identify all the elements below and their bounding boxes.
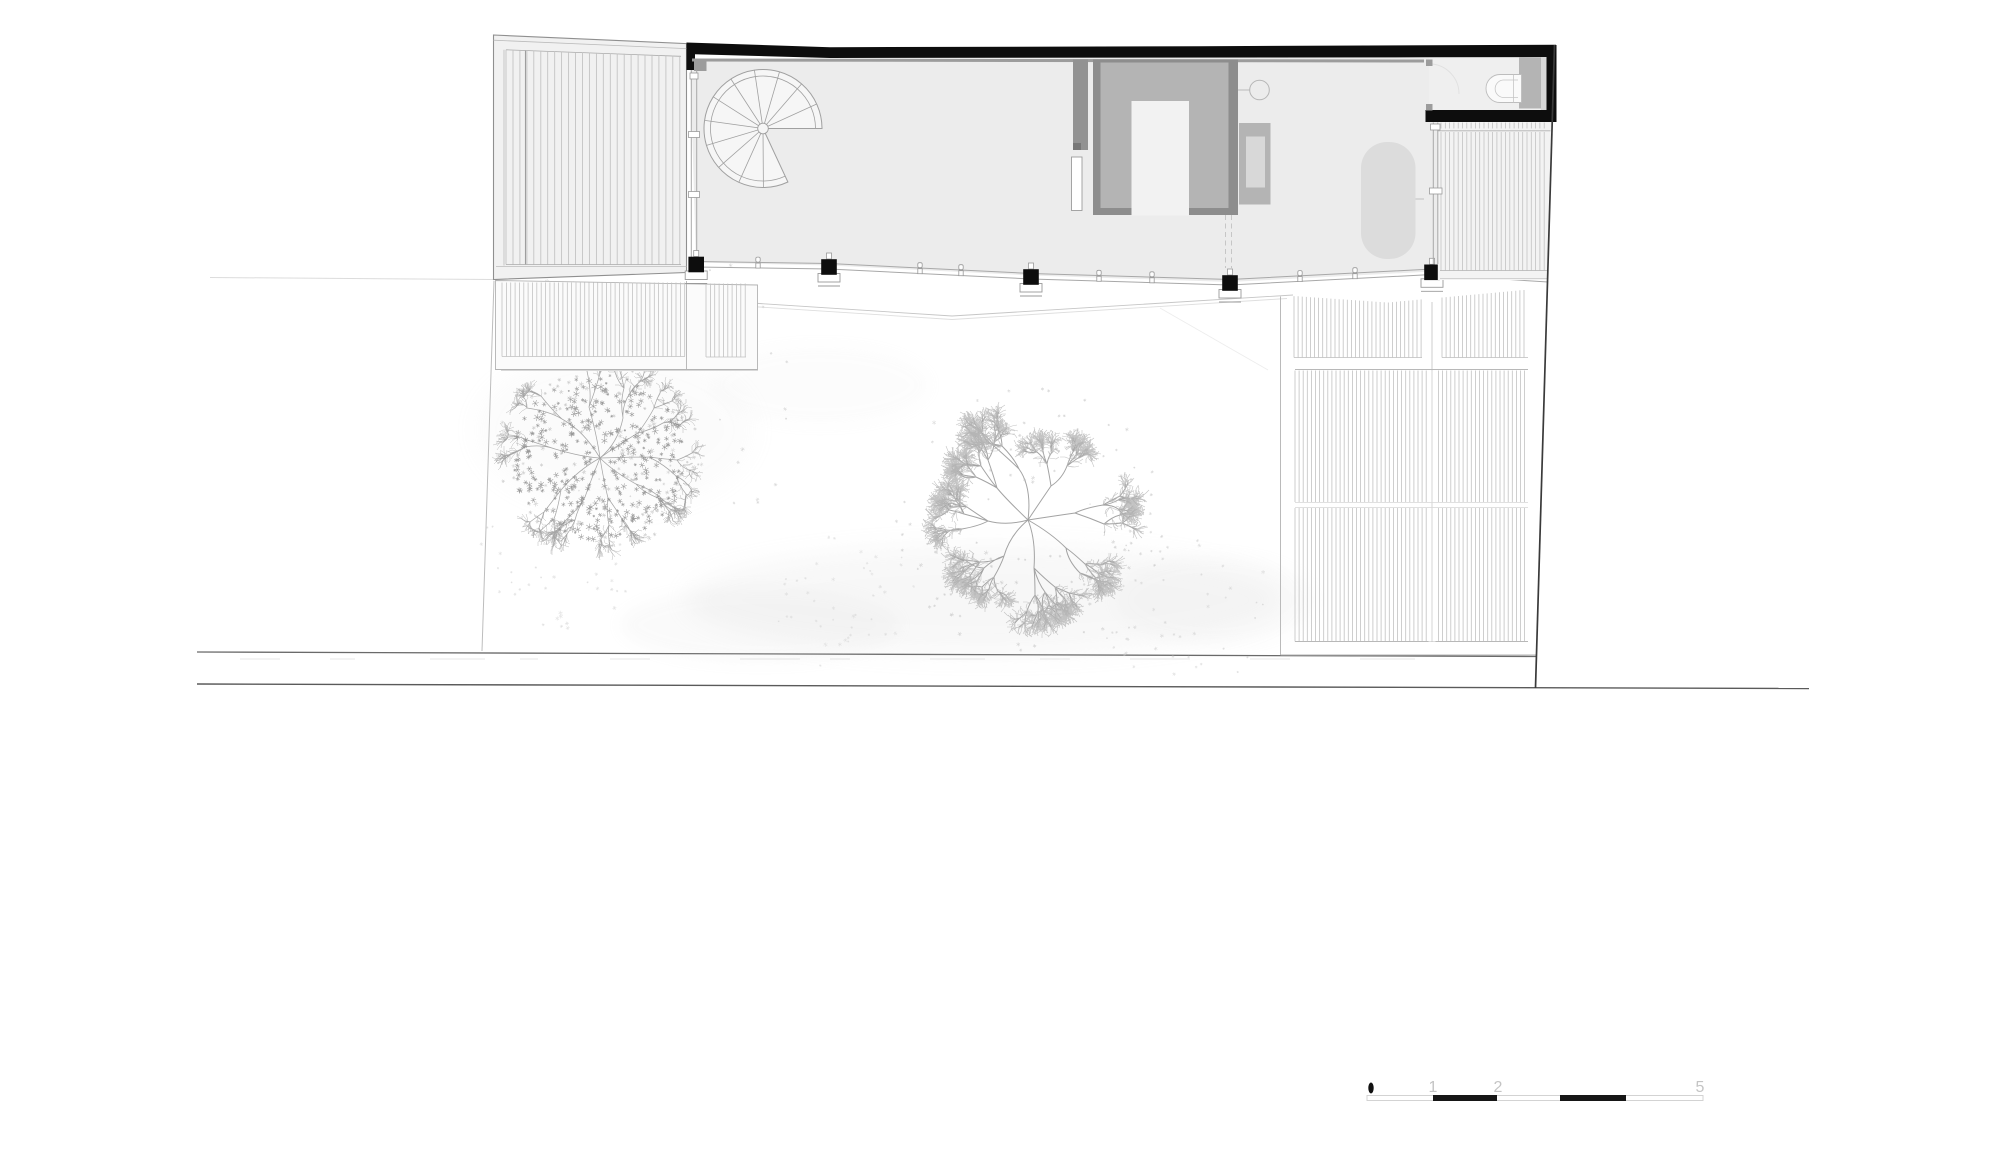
- svg-text:5: 5: [1696, 1079, 1705, 1096]
- svg-text:1: 1: [1429, 1079, 1438, 1096]
- svg-text:2: 2: [1494, 1079, 1503, 1096]
